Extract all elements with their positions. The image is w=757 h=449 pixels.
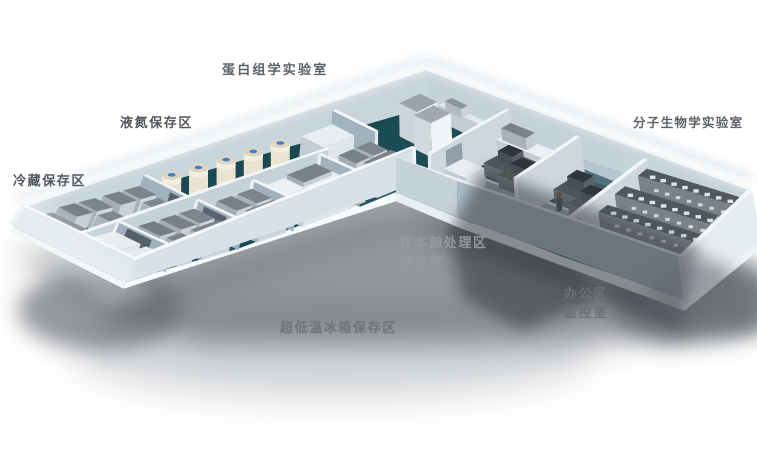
- svg-text:液氮保存区: 液氮保存区: [120, 115, 193, 130]
- svg-text:样本前处理区: 样本前处理区: [400, 235, 488, 250]
- svg-text:监控室: 监控室: [564, 305, 608, 320]
- svg-text:分子生物学实验室: 分子生物学实验室: [633, 115, 743, 130]
- svg-text:准备室: 准备室: [400, 255, 444, 270]
- svg-text:蛋白组学实验室: 蛋白组学实验室: [222, 62, 328, 77]
- svg-text:办公区: 办公区: [564, 286, 608, 301]
- svg-text:冷藏保存区: 冷藏保存区: [13, 173, 86, 188]
- svg-text:超低温冰箱保存区: 超低温冰箱保存区: [280, 320, 397, 335]
